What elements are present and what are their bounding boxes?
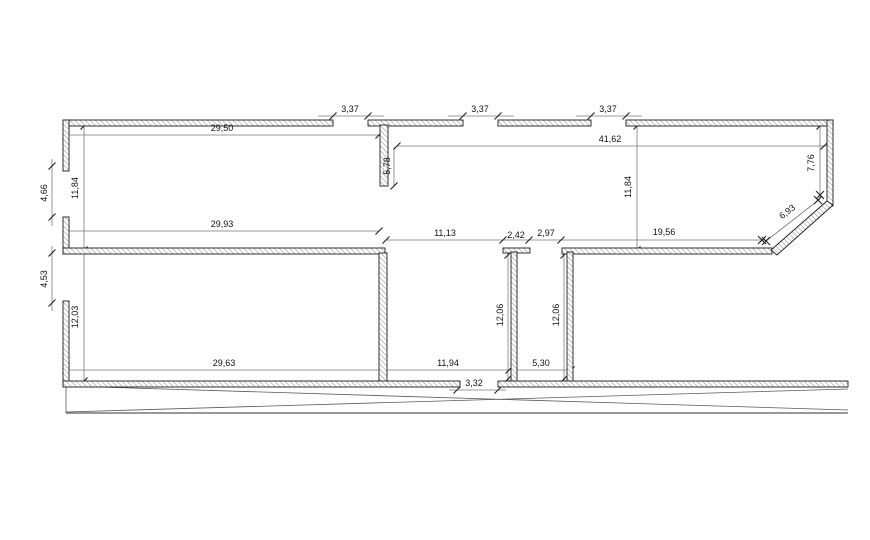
partition-wall-stem-2	[567, 252, 573, 382]
dimension-label: 3,32	[465, 378, 483, 388]
left-wall-segment-1	[63, 120, 69, 171]
partition-wall-large	[379, 253, 387, 382]
floor-plan-page: 29,503,373,373,3741,625,7811,844,6611,84…	[0, 0, 870, 540]
dimension-label: 11,94	[437, 358, 459, 368]
bottom-wall-segment-2	[498, 381, 848, 387]
dimension-label: 3,37	[341, 104, 359, 114]
middle-wall-segment-2	[562, 248, 772, 254]
corner-bevel-wall	[771, 201, 833, 255]
top-wall-segment-4	[626, 120, 833, 126]
dimension-label: 2,97	[537, 228, 555, 238]
dimension-label: 5,30	[532, 358, 550, 368]
dimension-label: 3,37	[471, 104, 489, 114]
dimension-label: 4,66	[39, 184, 49, 202]
dimension-label: 11,13	[434, 228, 456, 238]
dimension-label: 29,50	[211, 123, 234, 133]
left-wall-segment-3	[63, 301, 69, 386]
dimension-label: 29,63	[213, 358, 236, 368]
walls-layer	[63, 120, 848, 387]
right-wall	[827, 120, 833, 206]
dimension-label: 19,56	[653, 227, 676, 237]
stub-wall-top	[380, 125, 388, 186]
dimension-label: 12,03	[70, 306, 80, 329]
partition-wall-stem-1	[511, 252, 517, 382]
dimension-label: 11,84	[70, 177, 80, 199]
dimension-label: 11,84	[623, 176, 633, 198]
bottom-wall-segment-1	[63, 381, 460, 387]
middle-wall-segment-1	[63, 248, 385, 254]
dimension-label: 7,76	[806, 154, 816, 172]
dimension-label: 5,78	[382, 157, 392, 175]
site-line-cross-up	[66, 389, 848, 412]
dimension-label: 2,42	[507, 230, 525, 240]
dimension-label: 6,93	[777, 202, 797, 221]
dimension-label: 29,93	[211, 219, 234, 229]
top-wall-segment-3	[498, 120, 591, 126]
dimension-label: 41,62	[599, 134, 622, 144]
dimension-labels-layer: 29,503,373,373,3741,625,7811,844,6611,84…	[39, 104, 816, 388]
dimension-label: 3,37	[599, 104, 617, 114]
dimension-label: 12,06	[551, 304, 561, 327]
top-wall-segment-1	[64, 120, 333, 126]
dimension-label: 4,53	[39, 270, 49, 288]
floor-plan-drawing: 29,503,373,373,3741,625,7811,844,6611,84…	[0, 0, 870, 540]
dimension-label: 12,06	[495, 304, 505, 327]
